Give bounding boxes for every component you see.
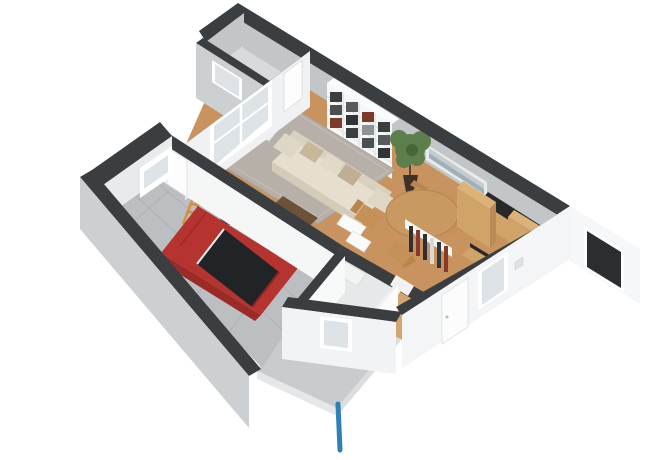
front-door-knob xyxy=(446,316,449,319)
east-corner-facade xyxy=(570,206,640,304)
book xyxy=(346,115,358,125)
floor-plan-render xyxy=(0,0,650,460)
pantry-item xyxy=(409,226,413,252)
pantry-item xyxy=(437,242,441,268)
book xyxy=(378,148,390,158)
book xyxy=(362,112,374,122)
book xyxy=(378,135,390,145)
pantry-item xyxy=(444,246,448,272)
pantry-item xyxy=(430,238,434,264)
pantry-item xyxy=(416,230,420,256)
book xyxy=(330,92,342,102)
tall-cabinet-side xyxy=(490,202,496,248)
drain-pipe xyxy=(338,404,340,450)
pantry-item xyxy=(423,234,427,260)
book xyxy=(330,118,342,128)
south-window-glass xyxy=(324,320,348,348)
book xyxy=(346,102,358,112)
book xyxy=(362,125,374,135)
floor-plan-screenshot xyxy=(0,0,650,460)
book xyxy=(346,128,358,138)
plant-foliage-shadow xyxy=(406,144,418,156)
book xyxy=(362,138,374,148)
book xyxy=(378,122,390,132)
book xyxy=(330,105,342,115)
